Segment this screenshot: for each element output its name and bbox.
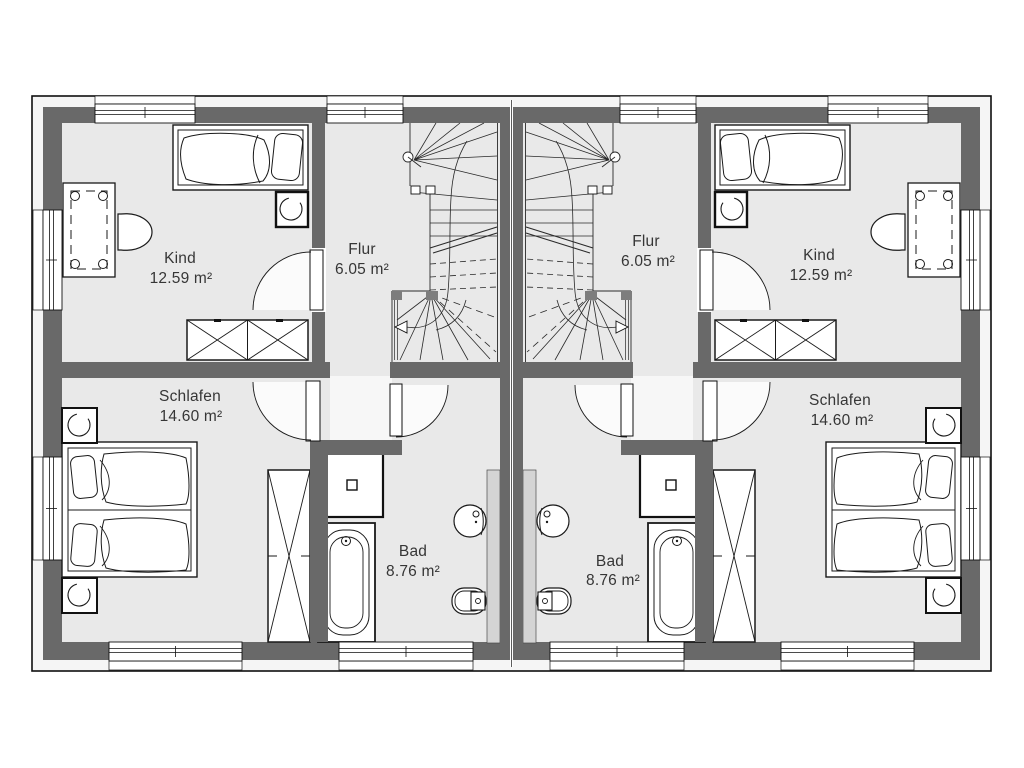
room-label-flur-left: Flur	[348, 241, 376, 258]
schlafen-double-bed	[62, 442, 197, 577]
kind-wardrobe	[187, 319, 308, 360]
bad-toilet	[452, 588, 486, 614]
kind-single-bed	[173, 125, 308, 190]
party-wall-joint	[510, 100, 513, 667]
room-area-bad-right: 8.76 m²	[586, 572, 640, 589]
room-area-kind-left: 12.59 m²	[150, 270, 213, 287]
kind-washbasin-cabinet	[276, 192, 308, 227]
room-label-schlafen-right: Schlafen	[809, 392, 871, 409]
room-label-kind-right: Kind	[803, 247, 835, 264]
room-area-schlafen-left: 14.60 m²	[160, 408, 223, 425]
party-wall-leaf	[500, 107, 510, 660]
schlafen-nightstand	[62, 578, 97, 613]
room-area-flur-right: 6.05 m²	[621, 253, 675, 270]
room-area-schlafen-right: 14.60 m²	[811, 412, 874, 429]
installation-wall	[487, 470, 500, 643]
room-label-schlafen-left: Schlafen	[159, 388, 221, 405]
bad-washbasin	[454, 505, 486, 537]
lobby-floor	[330, 376, 392, 440]
schlafen-wardrobe	[268, 470, 310, 642]
room-area-kind-right: 12.59 m²	[790, 267, 853, 284]
bad-shower	[320, 453, 383, 517]
room-label-bad-left: Bad	[399, 543, 427, 560]
floor-plan-canvas: Kind 12.59 m² Flur 6.05 m² Schlafen 14.6…	[0, 0, 1024, 768]
room-area-bad-left: 8.76 m²	[386, 563, 440, 580]
room-label-bad-right: Bad	[596, 553, 624, 570]
floor-plan-page: Kind 12.59 m² Flur 6.05 m² Schlafen 14.6…	[0, 0, 1024, 768]
room-area-flur-left: 6.05 m²	[335, 261, 389, 278]
kind-desk	[63, 183, 115, 277]
room-label-flur-right: Flur	[632, 233, 660, 250]
room-label-kind-left: Kind	[164, 250, 196, 267]
schlafen-nightstand	[62, 408, 97, 443]
